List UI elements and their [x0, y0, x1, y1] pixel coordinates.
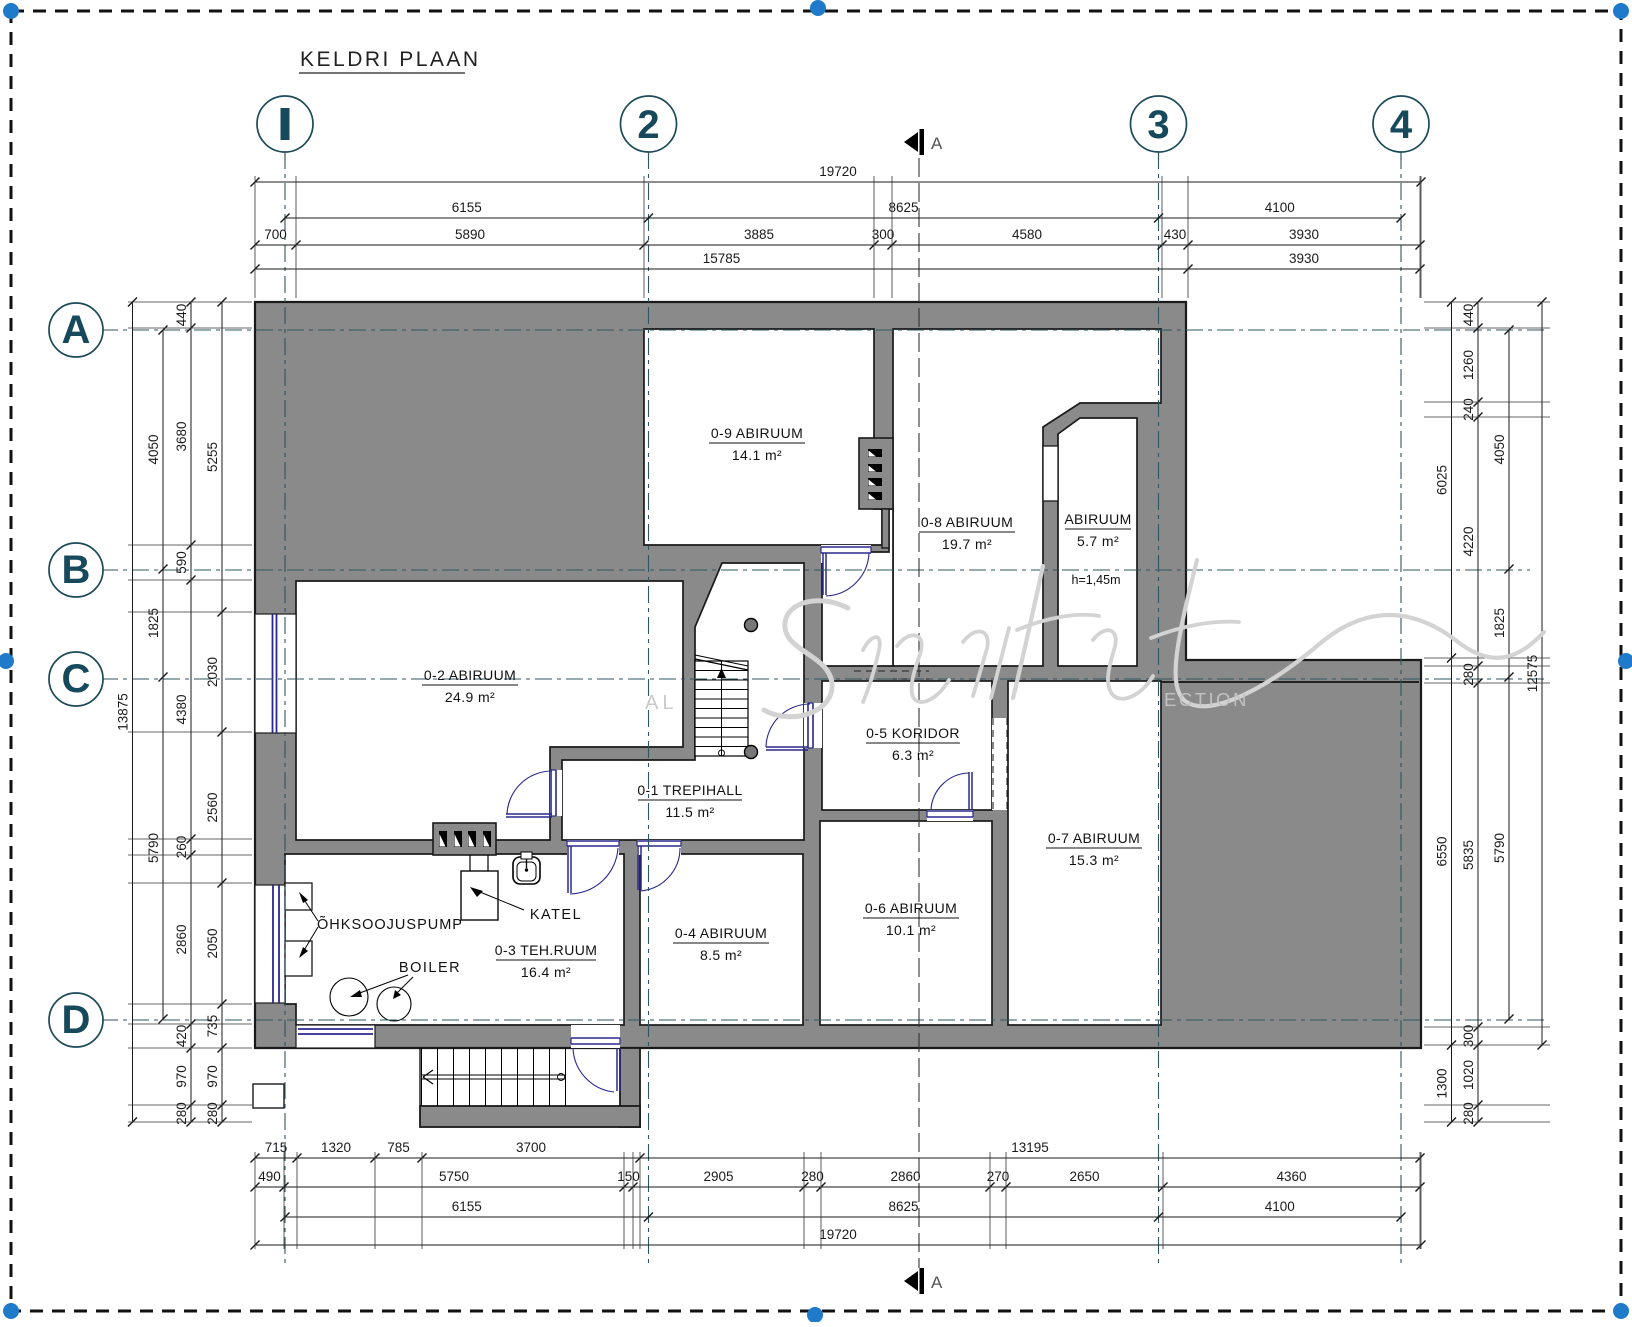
- svg-text:19720: 19720: [819, 164, 857, 179]
- svg-text:D: D: [62, 998, 91, 1042]
- svg-text:420: 420: [174, 1025, 189, 1048]
- svg-text:280: 280: [801, 1169, 824, 1184]
- svg-text:8.5 m²: 8.5 m²: [700, 947, 742, 963]
- svg-text:5790: 5790: [1492, 833, 1507, 863]
- svg-text:2560: 2560: [205, 792, 220, 822]
- svg-text:19.7 m²: 19.7 m²: [942, 536, 992, 552]
- svg-text:1300: 1300: [1435, 1068, 1450, 1098]
- svg-text:KELDRI PLAAN: KELDRI PLAAN: [300, 48, 481, 71]
- svg-text:8625: 8625: [888, 200, 918, 215]
- svg-text:0-5 KORIDOR: 0-5 KORIDOR: [866, 725, 960, 741]
- svg-text:0-2 ABIRUUM: 0-2 ABIRUUM: [424, 667, 516, 683]
- svg-text:2905: 2905: [703, 1169, 733, 1184]
- svg-text:1020: 1020: [1461, 1060, 1476, 1090]
- svg-text:2030: 2030: [205, 657, 220, 687]
- svg-text:1260: 1260: [1461, 350, 1476, 380]
- svg-text:4380: 4380: [174, 694, 189, 724]
- svg-text:15785: 15785: [703, 251, 741, 266]
- svg-text:AL: AL: [645, 692, 677, 714]
- svg-text:6550: 6550: [1435, 836, 1450, 866]
- svg-text:10.1 m²: 10.1 m²: [886, 922, 936, 938]
- svg-text:3680: 3680: [174, 421, 189, 451]
- svg-text:5.7 m²: 5.7 m²: [1077, 533, 1119, 549]
- svg-text:KATEL: KATEL: [530, 907, 582, 923]
- svg-text:A: A: [931, 1273, 943, 1292]
- svg-text:4050: 4050: [146, 434, 161, 464]
- svg-text:3700: 3700: [516, 1140, 546, 1155]
- svg-text:2: 2: [637, 103, 659, 147]
- svg-text:280: 280: [205, 1102, 220, 1125]
- svg-text:ABIRUUM: ABIRUUM: [1064, 511, 1131, 527]
- svg-text:4360: 4360: [1276, 1169, 1306, 1184]
- svg-text:24.9 m²: 24.9 m²: [445, 689, 495, 705]
- svg-text:5255: 5255: [205, 442, 220, 472]
- svg-text:280: 280: [174, 1102, 189, 1125]
- svg-text:0-1 TREPIHALL: 0-1 TREPIHALL: [637, 782, 742, 798]
- svg-text:3885: 3885: [744, 227, 774, 242]
- svg-text:13875: 13875: [116, 693, 131, 731]
- svg-text:0-3 TEH.RUUM: 0-3 TEH.RUUM: [495, 942, 598, 958]
- svg-text:1320: 1320: [321, 1140, 351, 1155]
- svg-text:1825: 1825: [1492, 608, 1507, 638]
- svg-text:ECTION: ECTION: [1164, 689, 1249, 710]
- svg-text:440: 440: [174, 304, 189, 327]
- svg-text:6155: 6155: [452, 1199, 482, 1214]
- svg-text:C: C: [62, 657, 91, 701]
- svg-text:14.1 m²: 14.1 m²: [732, 447, 782, 463]
- svg-text:19720: 19720: [819, 1227, 857, 1242]
- svg-text:4: 4: [1390, 103, 1413, 147]
- svg-text:150: 150: [617, 1169, 640, 1184]
- svg-text:0-7 ABIRUUM: 0-7 ABIRUUM: [1048, 830, 1140, 846]
- svg-text:BOILER: BOILER: [399, 960, 461, 976]
- svg-text:12575: 12575: [1525, 655, 1540, 693]
- svg-text:440: 440: [1461, 304, 1476, 327]
- svg-text:ÕHKSOOJUSPUMP: ÕHKSOOJUSPUMP: [317, 916, 463, 933]
- svg-text:5890: 5890: [455, 227, 485, 242]
- svg-text:0-9 ABIRUUM: 0-9 ABIRUUM: [711, 425, 803, 441]
- svg-text:280: 280: [1461, 663, 1476, 686]
- svg-text:8625: 8625: [888, 1199, 918, 1214]
- svg-text:15.3 m²: 15.3 m²: [1069, 852, 1119, 868]
- svg-text:2860: 2860: [174, 924, 189, 954]
- svg-text:430: 430: [1164, 227, 1187, 242]
- svg-text:590: 590: [174, 551, 189, 574]
- svg-text:0-4 ABIRUUM: 0-4 ABIRUUM: [675, 925, 767, 941]
- svg-text:3930: 3930: [1289, 227, 1319, 242]
- svg-text:6025: 6025: [1435, 465, 1450, 495]
- svg-text:A: A: [931, 134, 943, 153]
- svg-text:11.5 m²: 11.5 m²: [665, 804, 714, 820]
- svg-text:4100: 4100: [1265, 1199, 1295, 1214]
- svg-text:6155: 6155: [452, 200, 482, 215]
- svg-text:2050: 2050: [205, 928, 220, 958]
- svg-text:4580: 4580: [1012, 227, 1042, 242]
- svg-text:280: 280: [1461, 1102, 1476, 1125]
- svg-text:5835: 5835: [1461, 840, 1476, 870]
- svg-text:5790: 5790: [146, 833, 161, 863]
- svg-text:1825: 1825: [146, 608, 161, 638]
- svg-text:5750: 5750: [439, 1169, 469, 1184]
- svg-text:700: 700: [264, 227, 287, 242]
- svg-text:3930: 3930: [1289, 251, 1319, 266]
- svg-text:300: 300: [872, 227, 895, 242]
- svg-text:3: 3: [1147, 103, 1169, 147]
- svg-text:2860: 2860: [890, 1169, 920, 1184]
- svg-text:4050: 4050: [1492, 434, 1507, 464]
- svg-text:490: 490: [258, 1169, 281, 1184]
- svg-text:6.3 m²: 6.3 m²: [892, 747, 934, 763]
- svg-text:785: 785: [387, 1140, 410, 1155]
- svg-text:970: 970: [174, 1065, 189, 1088]
- svg-text:B: B: [62, 548, 91, 592]
- svg-text:16.4 m²: 16.4 m²: [521, 964, 571, 980]
- svg-text:h=1,45m: h=1,45m: [1072, 573, 1121, 587]
- svg-text:0-8 ABIRUUM: 0-8 ABIRUUM: [921, 514, 1013, 530]
- svg-text:4100: 4100: [1265, 200, 1295, 215]
- svg-text:A: A: [62, 308, 91, 352]
- svg-text:4220: 4220: [1461, 526, 1476, 556]
- svg-text:2650: 2650: [1069, 1169, 1099, 1184]
- svg-text:13195: 13195: [1011, 1140, 1049, 1155]
- svg-text:970: 970: [205, 1065, 220, 1088]
- svg-text:300: 300: [1461, 1025, 1476, 1048]
- svg-text:0-6 ABIRUUM: 0-6 ABIRUUM: [865, 900, 957, 916]
- svg-text:735: 735: [205, 1015, 220, 1038]
